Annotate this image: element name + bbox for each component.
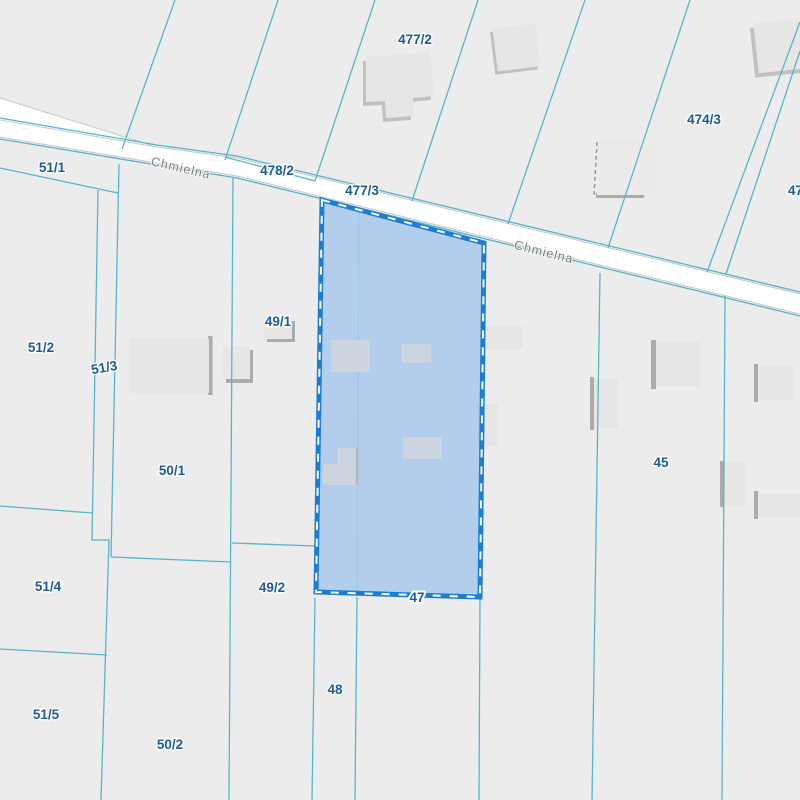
map-viewport[interactable]: Chmielna Chmielna 51/1 478/2 477/3 477/2…: [0, 0, 800, 800]
building-footprint: [483, 326, 523, 350]
parcel-label-49-1: 49/1: [265, 314, 292, 329]
selected-parcel-47[interactable]: [316, 200, 484, 597]
building-footprint: [656, 342, 700, 387]
building-footprint: [402, 344, 431, 363]
parcel-label-51-4: 51/4: [35, 579, 62, 594]
building-footprint: [758, 366, 793, 400]
parcel-label-47-selected: 47: [409, 590, 424, 605]
building-group: [750, 19, 800, 78]
selected-parcel-fill[interactable]: [316, 200, 484, 597]
parcel-label-477-2: 477/2: [398, 32, 432, 47]
parcel-label-51-2: 51/2: [28, 340, 54, 355]
parcel-label-48: 48: [327, 682, 343, 697]
building-shadow: [590, 377, 594, 430]
parcel-label-477-3: 477/3: [345, 183, 379, 198]
building-footprint: [597, 141, 654, 195]
parcel-label-45: 45: [653, 455, 669, 470]
building-footprint: [331, 340, 370, 372]
parcel-label-51-1: 51/1: [39, 160, 66, 175]
building-shadow: [754, 364, 758, 402]
building-footprint: [754, 19, 800, 74]
parcel-label-51-5: 51/5: [33, 707, 60, 722]
map-canvas[interactable]: Chmielna Chmielna 51/1 478/2 477/3 477/2…: [0, 0, 800, 800]
parcel-label-474-3: 474/3: [687, 112, 721, 127]
parcel-label-478-2: 478/2: [260, 163, 294, 178]
building-shadow: [356, 448, 359, 485]
building-footprint: [129, 338, 209, 393]
building-group: [490, 23, 541, 74]
building-footprint: [403, 437, 442, 459]
building-footprint: [493, 23, 541, 71]
building-shadow: [754, 491, 758, 519]
building-footprint: [758, 493, 800, 517]
parcel-label-50-2: 50/2: [157, 737, 183, 752]
parcel-label-49-2: 49/2: [259, 580, 285, 595]
parcel-label-47-edge: 47: [788, 183, 800, 198]
building-footprint: [724, 463, 745, 505]
parcel-label-50-1: 50/1: [159, 463, 186, 478]
building-shadow: [651, 340, 656, 389]
building-footprint: [223, 347, 250, 379]
